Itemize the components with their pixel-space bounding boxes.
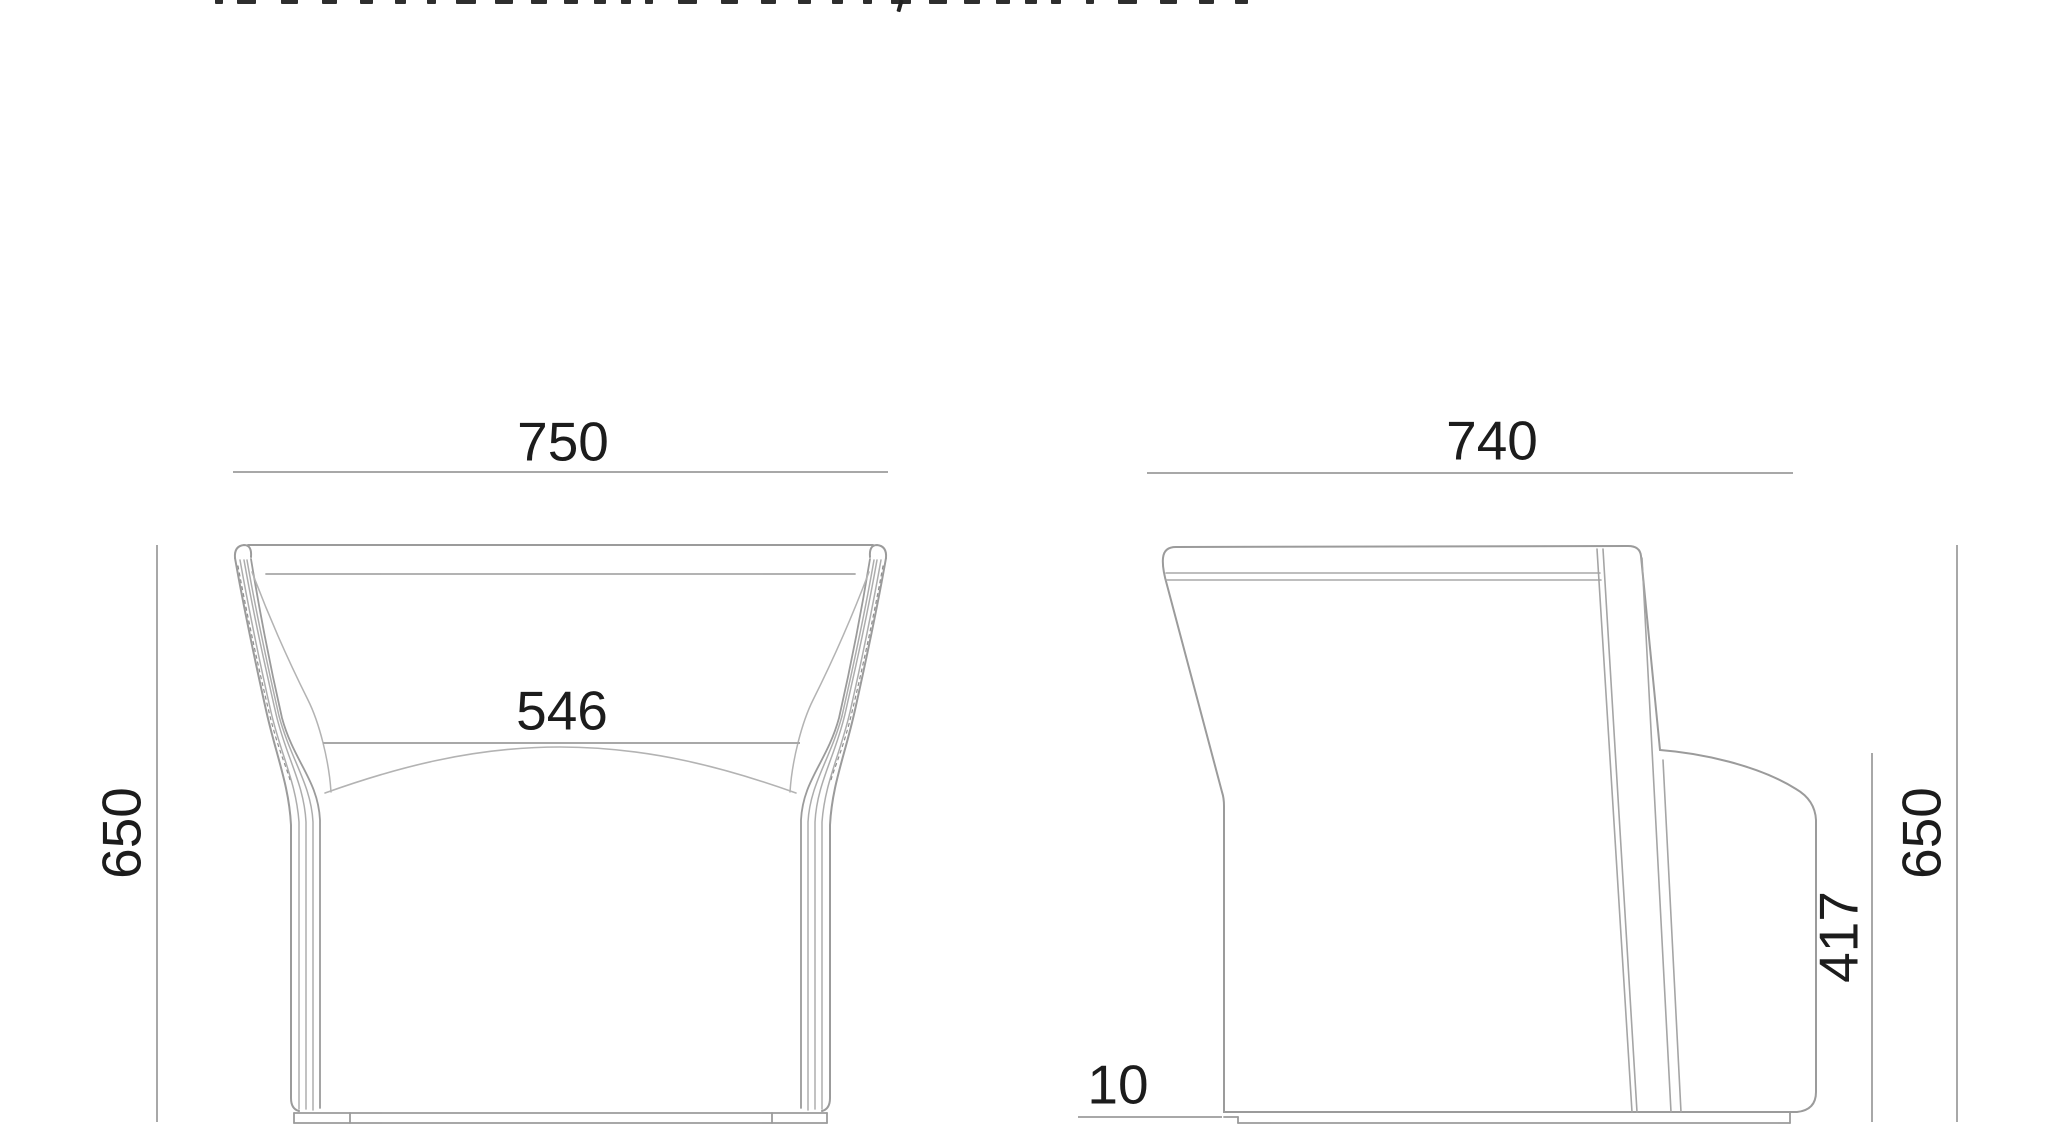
front-base-plinth — [294, 1113, 827, 1123]
side-height-label: 650 — [1895, 787, 1950, 879]
arm-front-edge — [1663, 760, 1681, 1112]
seat-cushion-arch — [325, 747, 796, 793]
dimension-lines — [157, 472, 1957, 1122]
seat-width-label: 546 — [516, 684, 608, 739]
side-backrest-band — [1597, 549, 1681, 1112]
wing-outer-edge — [235, 558, 299, 1111]
side-view-drawing — [1163, 546, 1816, 1123]
wing-piping-texture — [238, 566, 290, 780]
front-left-wing — [235, 545, 331, 1111]
wing-seam-line — [247, 560, 313, 1110]
side-outline — [1163, 546, 1816, 1112]
side-base-plinth — [1224, 1113, 1790, 1123]
front-right-wing — [790, 545, 886, 1111]
front-view-drawing — [235, 545, 886, 1123]
technical-drawing-page: 750 546 650 740 650 417 10 — [0, 0, 2048, 1142]
front-height-label: 650 — [95, 787, 150, 879]
side-depth-label: 740 — [1446, 414, 1538, 469]
front-width-label: 750 — [517, 415, 609, 470]
base-height-label: 10 — [1087, 1058, 1148, 1113]
armchair-orthographic-drawing — [0, 0, 2048, 1142]
arm-height-label: 417 — [1812, 891, 1867, 983]
wing-inner-edge — [251, 559, 320, 1108]
